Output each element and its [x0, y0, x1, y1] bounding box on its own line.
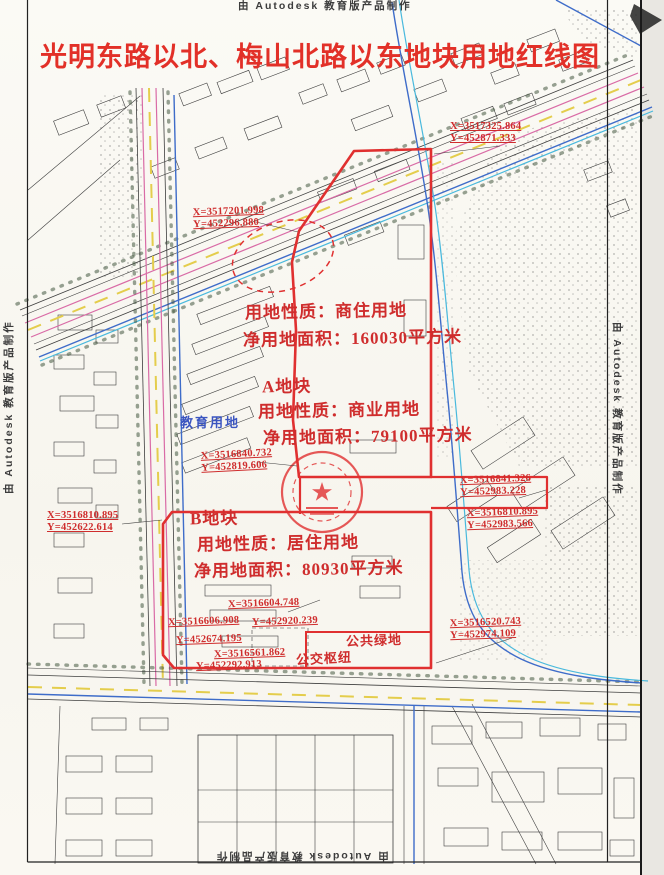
scanned-map-page: 光明东路以北、梅山北路以东地块用地红线图 由 Autodesk 教育版产品制作 … — [0, 0, 664, 875]
coord-y: Y=452983.228 — [460, 485, 532, 500]
site-use-label: 用地性质：商住用地 — [245, 301, 407, 323]
attribution-right: 由 Autodesk 教育版产品制作 — [611, 322, 623, 496]
coord-top-right: X=3517325.864 Y=452871.333 — [450, 121, 521, 145]
coord-south-cluster-3: Y=452674.195 — [176, 633, 242, 647]
map-title: 光明东路以北、梅山北路以东地块用地红线图 — [40, 42, 600, 73]
green-space-label: 公共绿地 — [346, 633, 403, 650]
coord-south-cluster-1: X=3516606.908 — [168, 615, 240, 630]
parcel-a-area: 净用地面积：79100平方米 — [263, 425, 473, 448]
coord-y: Y=452974.109 — [450, 628, 522, 643]
coord-y: Y=452983.566 — [467, 518, 539, 533]
coord-x: X=3516810.895 — [47, 510, 118, 522]
coord-y: Y=452296.880 — [193, 217, 265, 232]
coord-x: X=3517325.864 — [450, 121, 521, 133]
red-seal-stamp — [282, 452, 362, 532]
attribution-top: 由 Autodesk 教育版产品制作 — [238, 0, 412, 12]
transit-hub-label: 公交枢纽 — [296, 651, 353, 669]
coord-south-right: X=3516520.743 Y=452974.109 — [450, 616, 522, 643]
parcel-a-name: A地块 — [262, 377, 312, 397]
coord-west-edge: X=3516810.895 Y=452622.614 — [47, 510, 118, 534]
road-south-horizontal — [28, 664, 641, 717]
attribution-bottom: 由 Autodesk 教育版产品制作 — [215, 850, 389, 862]
site-area-label: 净用地面积：160030平方米 — [243, 327, 462, 350]
coord-upper-left: X=3517201.998 Y=452296.880 — [193, 205, 265, 232]
parcel-b-area: 净用地面积：80930平方米 — [194, 558, 404, 581]
coord-south-cluster-2: Y=452920.239 — [252, 615, 318, 629]
attribution-left: 由 Autodesk 教育版产品制作 — [3, 320, 15, 494]
coord-y: Y=452871.333 — [450, 133, 521, 145]
coord-south-cluster-0: X=3516604.748 — [228, 597, 300, 612]
coord-east-step-1: X=3516841.326 Y=452983.228 — [460, 473, 532, 500]
parcel-b-name: B地块 — [190, 509, 239, 529]
coord-south-cluster-5: Y=452292.913 — [196, 659, 262, 673]
parcel-a-use: 用地性质：商业用地 — [258, 400, 420, 422]
buildings-south — [55, 704, 634, 864]
scan-margin — [642, 0, 664, 875]
coord-east-step-2: X=3516810.895 Y=452983.566 — [467, 506, 539, 533]
coord-y: Y=452622.614 — [47, 522, 118, 534]
coord-mid-left: X=3516840.732 Y=452819.606 — [200, 447, 272, 475]
education-land-label: 教育用地 — [180, 416, 240, 431]
parcel-b-use: 用地性质：居住用地 — [197, 533, 359, 555]
